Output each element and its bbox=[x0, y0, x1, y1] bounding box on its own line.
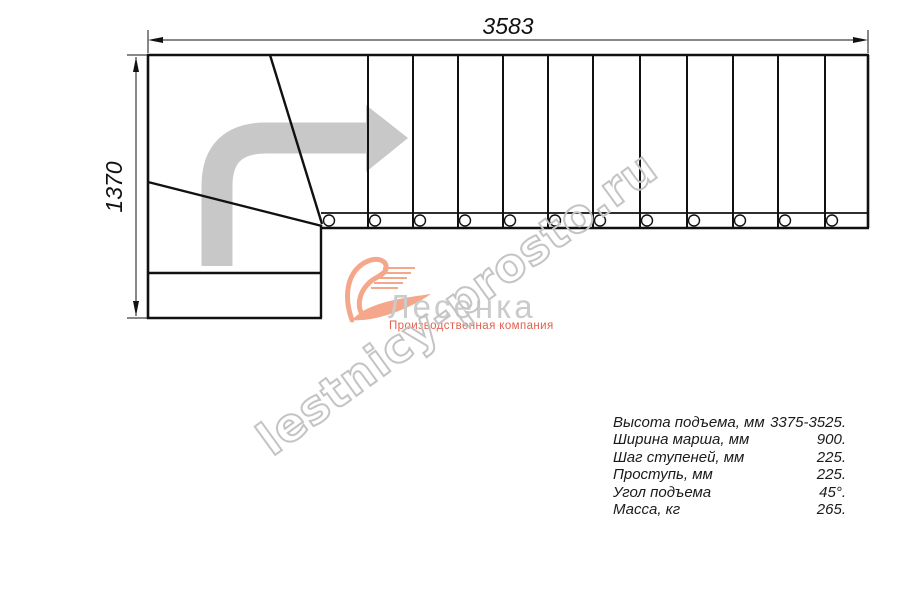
baluster-circle bbox=[735, 215, 746, 226]
baluster-circle bbox=[642, 215, 653, 226]
spec-row: Проступь, мм 225. bbox=[613, 466, 846, 483]
spec-label: Ширина марша, мм bbox=[613, 431, 749, 448]
spec-label: Высота подъема, мм bbox=[613, 414, 765, 431]
baluster-circle bbox=[460, 215, 471, 226]
dimension-arrow-top bbox=[133, 57, 139, 72]
spec-row: Высота подъема, мм 3375-3525. bbox=[613, 414, 846, 431]
spec-label: Шаг ступеней, мм bbox=[613, 449, 744, 466]
baluster-circle bbox=[780, 215, 791, 226]
direction-arrow-shaft bbox=[217, 138, 367, 266]
tread-lines bbox=[368, 55, 825, 228]
company-logo: Лесенка Производственная компания bbox=[343, 256, 573, 338]
baluster-circle bbox=[324, 215, 335, 226]
spec-value: 265. bbox=[817, 501, 846, 518]
baluster-circles bbox=[324, 215, 838, 226]
baluster-circle bbox=[505, 215, 516, 226]
spec-value: 225. bbox=[817, 449, 846, 466]
spec-label: Масса, кг bbox=[613, 501, 680, 518]
baluster-circle bbox=[689, 215, 700, 226]
baluster-circle bbox=[415, 215, 426, 226]
direction-arrow-head bbox=[366, 105, 408, 172]
baluster-circle bbox=[370, 215, 381, 226]
spec-value: 900. bbox=[817, 431, 846, 448]
brand-subtitle: Производственная компания bbox=[389, 320, 554, 332]
spec-row: Угол подъема 45°. bbox=[613, 484, 846, 501]
left-dimension-label: 1370 bbox=[101, 161, 127, 212]
baluster-circle bbox=[550, 215, 561, 226]
spec-value: 3375-3525. bbox=[770, 414, 846, 431]
baluster-circle bbox=[595, 215, 606, 226]
dimension-arrow-left bbox=[148, 37, 163, 43]
top-dimension-label: 3583 bbox=[482, 13, 533, 39]
spec-row: Ширина марша, мм 900. bbox=[613, 431, 846, 448]
spec-value: 225. bbox=[817, 466, 846, 483]
baluster-circle bbox=[827, 215, 838, 226]
left-dimension bbox=[127, 55, 150, 318]
winder-line-lower bbox=[148, 182, 322, 226]
spec-label: Проступь, мм bbox=[613, 466, 713, 483]
spec-label: Угол подъема bbox=[613, 484, 711, 501]
dimension-arrow-right bbox=[853, 37, 868, 43]
spec-row: Масса, кг 265. bbox=[613, 501, 846, 518]
spec-value: 45°. bbox=[819, 484, 846, 501]
direction-arrow bbox=[217, 105, 408, 266]
spec-row: Шаг ступеней, мм 225. bbox=[613, 449, 846, 466]
dimension-arrow-bottom bbox=[133, 301, 139, 316]
specs-table: Высота подъема, мм 3375-3525. Ширина мар… bbox=[613, 414, 846, 518]
